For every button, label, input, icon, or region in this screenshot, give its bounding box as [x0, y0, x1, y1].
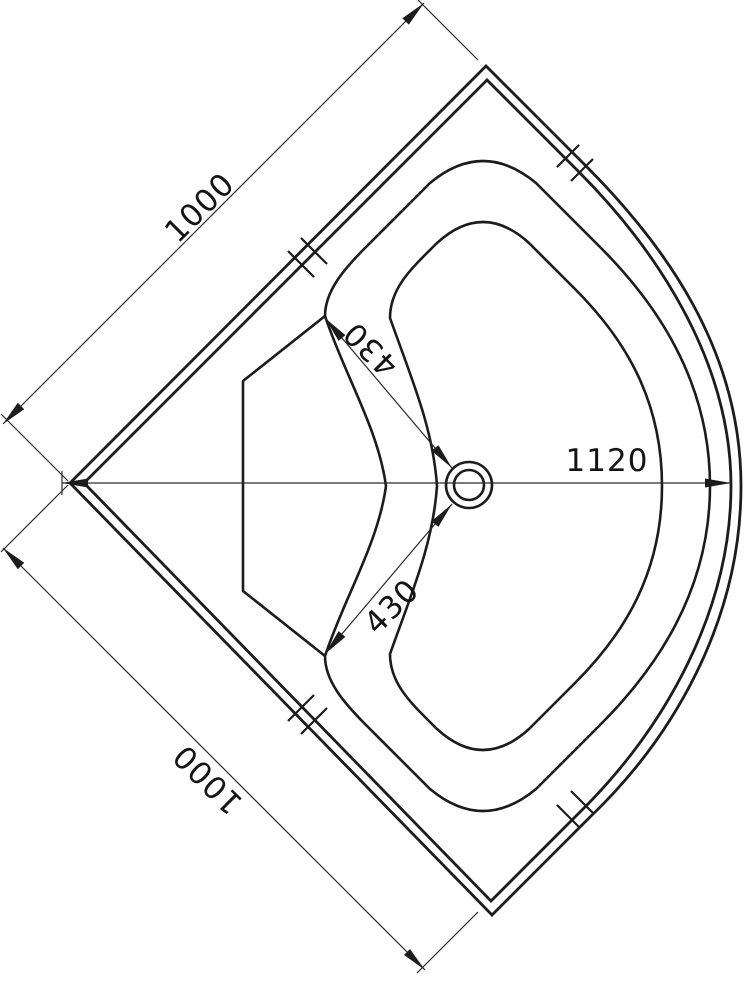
dimension-label-bottom-edge: 1000 — [166, 737, 250, 821]
drawing-canvas: 1000 1000 1120 — [0, 0, 748, 984]
shower-tray-technical-drawing: 1000 1000 1120 — [0, 0, 748, 984]
rim-tick-front-top — [557, 145, 593, 181]
rim-tick-wall-top — [288, 238, 327, 277]
dimension-seat-bottom: 430 — [325, 504, 452, 654]
dimension-top-edge: 1000 — [1, 0, 478, 481]
extension-line — [417, 912, 478, 973]
drain-inner-ring — [454, 470, 484, 500]
tray-outline-group — [70, 66, 741, 915]
arrowhead — [402, 3, 424, 25]
extension-line — [1, 414, 68, 481]
dimension-label-top-edge: 1000 — [158, 166, 242, 250]
basin-floor-edge — [390, 222, 662, 750]
arrowhead — [705, 479, 731, 488]
tray-outer-rim — [70, 66, 741, 915]
seat-edge — [243, 316, 325, 656]
drain-icon — [446, 462, 492, 508]
rim-tick-front-bottom — [557, 791, 593, 827]
arrowhead — [325, 631, 345, 654]
dimension-seat-top: 430 — [325, 314, 452, 468]
extension-line — [418, 0, 478, 60]
dimension-diagonal: 1120 — [62, 443, 731, 495]
extension-line — [1, 485, 68, 552]
arrowhead — [404, 949, 425, 970]
rim-tick-marks — [288, 145, 593, 827]
dimension-label-diagonal: 1120 — [566, 443, 649, 479]
dimension-group: 1000 1000 1120 — [1, 0, 731, 973]
